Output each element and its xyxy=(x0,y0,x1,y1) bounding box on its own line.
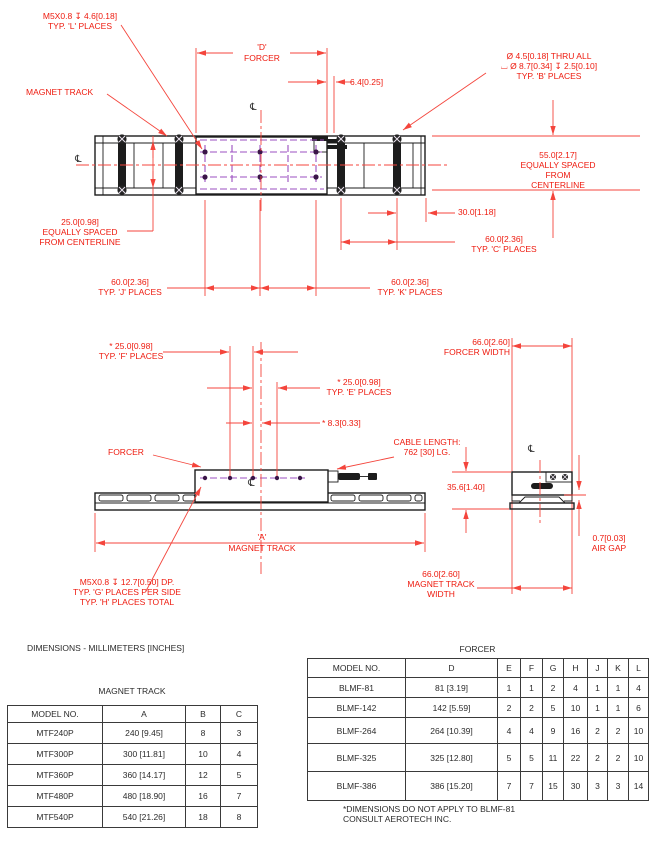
table-cell: 1 xyxy=(588,698,608,718)
column-header: MODEL NO. xyxy=(308,659,406,678)
table-row: BLMF-386 386 [15.20] 7 7 15 30 3 3 14 xyxy=(308,772,649,801)
dim-25-f-places: * 25.0[0.98] TYP. 'F' PLACES xyxy=(92,341,170,361)
dim-60-k-places: 60.0[2.36] TYP. 'K' PLACES xyxy=(370,277,450,297)
table-cell: 15 xyxy=(543,772,564,801)
table-row: MTF360P 360 [14.17] 12 5 xyxy=(8,765,258,786)
column-header: A xyxy=(103,706,186,723)
table-cell: 16 xyxy=(564,718,588,744)
table-cell: 8 xyxy=(186,723,221,744)
dim-55-equally-spaced: 55.0[2.17] EQUALLY SPACED FROM CENTERLIN… xyxy=(518,150,598,190)
table-cell: BLMF-142 xyxy=(308,698,406,718)
table-cell: 1 xyxy=(498,678,521,698)
column-header: K xyxy=(608,659,629,678)
table-cell: 2 xyxy=(521,698,543,718)
forcer-table: MODEL NO. D E F G H J K L BLMF-81 81 [3.… xyxy=(307,658,649,801)
table-cell: 7 xyxy=(521,772,543,801)
table-cell: 2 xyxy=(588,744,608,772)
forcer-side xyxy=(195,470,377,502)
column-header: H xyxy=(564,659,588,678)
table-header-row: MODEL NO. D E F G H J K L xyxy=(308,659,649,678)
table-cell: BLMF-325 xyxy=(308,744,406,772)
forcer-end xyxy=(510,472,574,509)
table-cell: 9 xyxy=(543,718,564,744)
table-cell: 4 xyxy=(521,718,543,744)
table-cell: 386 [15.20] xyxy=(406,772,498,801)
table-cell: 300 [11.81] xyxy=(103,744,186,765)
table-cell: 2 xyxy=(543,678,564,698)
table-cell: 5 xyxy=(521,744,543,772)
table-cell: 5 xyxy=(543,698,564,718)
table-cell: 360 [14.17] xyxy=(103,765,186,786)
dim-a-magnet-track: 'A' MAGNET TRACK xyxy=(225,532,299,554)
table-cell: 11 xyxy=(543,744,564,772)
table-row: MTF300P 300 [11.81] 10 4 xyxy=(8,744,258,765)
table-cell: MTF360P xyxy=(8,765,103,786)
table-cell: 10 xyxy=(629,718,649,744)
note-tap-forcer-holes: M5X0.8 ↧ 4.6[0.18] TYP. 'L' PLACES xyxy=(30,11,130,31)
table-cell: 16 xyxy=(186,786,221,807)
cable-length-note: CABLE LENGTH: 762 [30] LG. xyxy=(384,437,470,457)
table-cell: 2 xyxy=(588,718,608,744)
dim-60-c-places: 60.0[2.36] TYP. 'C' PLACES xyxy=(460,234,548,254)
table-cell: MTF480P xyxy=(8,786,103,807)
dim-d-forcer: 'D' FORCER xyxy=(231,42,293,64)
note-tap-track-holes: M5X0.8 ↧ 12.7[0.50] DP. TYP. 'G' PLACES … xyxy=(46,577,208,607)
table-cell: 264 [10.39] xyxy=(406,718,498,744)
table-cell: 10 xyxy=(564,698,588,718)
column-header: B xyxy=(186,706,221,723)
table-cell: BLMF-264 xyxy=(308,718,406,744)
table-cell: 22 xyxy=(564,744,588,772)
table-cell: 4 xyxy=(498,718,521,744)
table-cell: 1 xyxy=(588,678,608,698)
table-cell: 4 xyxy=(221,744,258,765)
table-cell: MTF540P xyxy=(8,807,103,828)
forcer-callout: FORCER xyxy=(108,447,154,457)
centerline-icon: ℄ xyxy=(528,445,534,455)
table-cell: 10 xyxy=(186,744,221,765)
table-cell: 480 [18.90] xyxy=(103,786,186,807)
table-header-row: MODEL NO. A B C xyxy=(8,706,258,723)
table-cell: 2 xyxy=(498,698,521,718)
table-cell: 5 xyxy=(498,744,521,772)
table-row: BLMF-142 142 [5.59] 2 2 5 10 1 1 6 xyxy=(308,698,649,718)
column-header: MODEL NO. xyxy=(8,706,103,723)
end-view-dimensions-under xyxy=(512,338,572,594)
table-cell: 4 xyxy=(564,678,588,698)
table-cell: 240 [9.45] xyxy=(103,723,186,744)
column-header: L xyxy=(629,659,649,678)
dim-magnet-track-width: 66.0[2.60] MAGNET TRACK WIDTH xyxy=(406,569,476,599)
table-cell: 4 xyxy=(629,678,649,698)
dim-forcer-width: 66.0[2.60] FORCER WIDTH xyxy=(442,337,510,357)
dim-25-equally-spaced: 25.0[0.98] EQUALLY SPACED FROM CENTERLIN… xyxy=(20,217,140,247)
units-note: DIMENSIONS - MILLIMETERS [INCHES] xyxy=(27,643,257,653)
table-row: MTF540P 540 [21.26] 18 8 xyxy=(8,807,258,828)
table-cell: 3 xyxy=(588,772,608,801)
forcer-table-title: FORCER xyxy=(307,644,648,654)
column-header: E xyxy=(498,659,521,678)
table-cell: 30 xyxy=(564,772,588,801)
end-view-dimensions xyxy=(452,346,586,588)
table-cell: 1 xyxy=(608,678,629,698)
table-row: BLMF-81 81 [3.19] 1 1 2 4 1 1 4 xyxy=(308,678,649,698)
note-counterbore-holes: Ø 4.5[0.18] THRU ALL ⌴ Ø 8.7[0.34] ↧ 2.5… xyxy=(482,51,616,81)
table-cell: 3 xyxy=(221,723,258,744)
centerline-icon: ℄ xyxy=(250,103,256,113)
magnet-track-table: MODEL NO. A B C MTF240P 240 [9.45] 8 3 M… xyxy=(7,705,258,828)
dim-air-gap: 0.7[0.03] AIR GAP xyxy=(584,533,634,553)
table-cell: 7 xyxy=(221,786,258,807)
engineering-drawing-page: M5X0.8 ↧ 4.6[0.18] TYP. 'L' PLACES MAGNE… xyxy=(0,0,650,843)
dim-25-e-places: * 25.0[0.98] TYP. 'E' PLACES xyxy=(318,377,400,397)
column-header: F xyxy=(521,659,543,678)
centerline-icon: ℄ xyxy=(248,479,254,489)
magnet-track-table-title: MAGNET TRACK xyxy=(7,686,257,696)
table-cell: 5 xyxy=(221,765,258,786)
column-header: J xyxy=(588,659,608,678)
magnet-track-callout: MAGNET TRACK xyxy=(26,87,106,97)
table-cell: 325 [12.80] xyxy=(406,744,498,772)
table-cell: MTF300P xyxy=(8,744,103,765)
table-cell: 18 xyxy=(186,807,221,828)
dim-35-6: 35.6[1.40] xyxy=(447,482,495,492)
table-cell: 14 xyxy=(629,772,649,801)
table-cell: BLMF-386 xyxy=(308,772,406,801)
column-header: C xyxy=(221,706,258,723)
dim-8-3: * 8.3[0.33] xyxy=(322,418,374,428)
table-row: BLMF-325 325 [12.80] 5 5 11 22 2 2 10 xyxy=(308,744,649,772)
table-cell: 142 [5.59] xyxy=(406,698,498,718)
end-view xyxy=(452,338,586,594)
table-cell: BLMF-81 xyxy=(308,678,406,698)
table-cell: 540 [21.26] xyxy=(103,807,186,828)
column-header: D xyxy=(406,659,498,678)
table-row: MTF480P 480 [18.90] 16 7 xyxy=(8,786,258,807)
table-row: BLMF-264 264 [10.39] 4 4 9 16 2 2 10 xyxy=(308,718,649,744)
table-cell: 8 xyxy=(221,807,258,828)
table-cell: MTF240P xyxy=(8,723,103,744)
table-cell: 6 xyxy=(629,698,649,718)
table-cell: 2 xyxy=(608,718,629,744)
table-footnote: *DIMENSIONS DO NOT APPLY TO BLMF-81 CONS… xyxy=(343,804,543,824)
cable-connector xyxy=(328,471,377,482)
table-cell: 2 xyxy=(608,744,629,772)
table-row: MTF240P 240 [9.45] 8 3 xyxy=(8,723,258,744)
dim-60-j-places: 60.0[2.36] TYP. 'J' PLACES xyxy=(93,277,167,297)
table-cell: 81 [3.19] xyxy=(406,678,498,698)
dim-30: 30.0[1.18] xyxy=(458,207,508,217)
table-cell: 1 xyxy=(521,678,543,698)
centerline-icon: ℄ xyxy=(75,155,81,165)
dim-6-4: 6.4[0.25] xyxy=(350,77,400,87)
table-cell: 12 xyxy=(186,765,221,786)
column-header: G xyxy=(543,659,564,678)
table-cell: 1 xyxy=(608,698,629,718)
table-cell: 10 xyxy=(629,744,649,772)
table-cell: 7 xyxy=(498,772,521,801)
table-cell: 3 xyxy=(608,772,629,801)
